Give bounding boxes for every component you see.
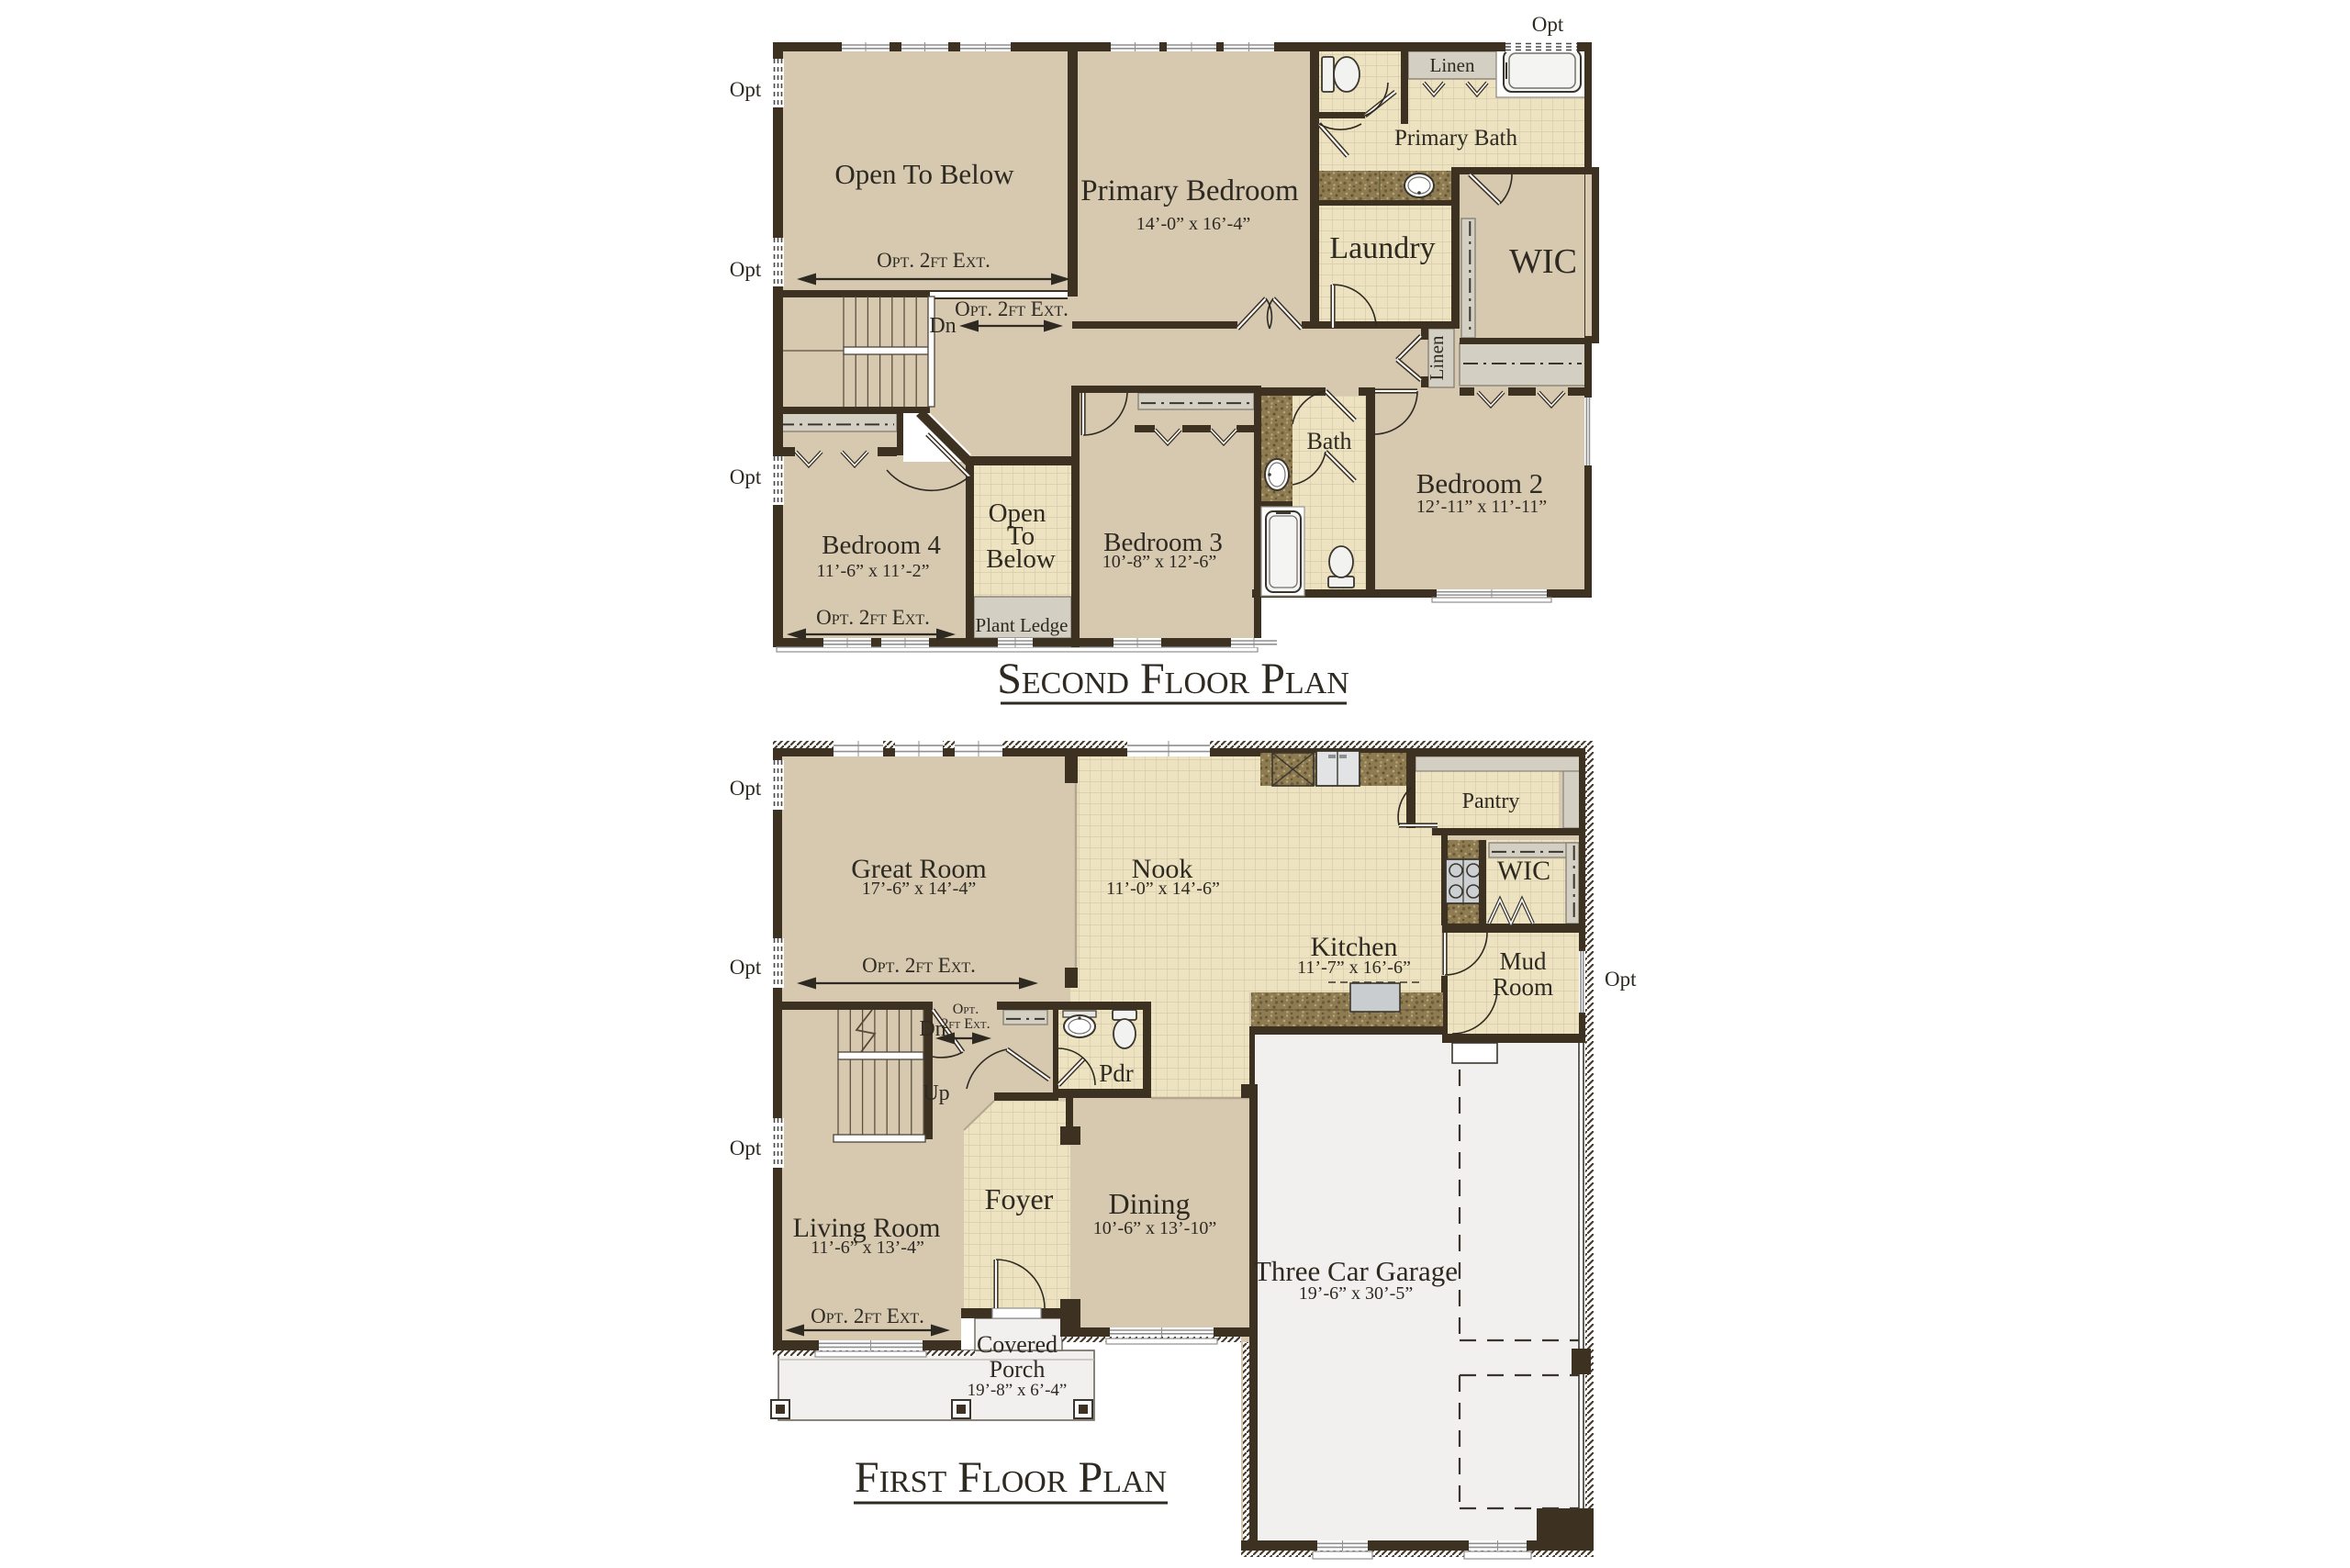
- svg-text:Foyer: Foyer: [985, 1182, 1054, 1215]
- svg-text:Room: Room: [1493, 973, 1553, 1001]
- svg-text:Linen: Linen: [1426, 335, 1448, 380]
- svg-text:Opt. 2ft Ext.: Opt. 2ft Ext.: [811, 1305, 924, 1327]
- svg-text:19’-6” x 30’-5”: 19’-6” x 30’-5”: [1299, 1283, 1413, 1304]
- svg-text:Mud: Mud: [1499, 947, 1547, 975]
- svg-text:11’-6” x 13’-4”: 11’-6” x 13’-4”: [811, 1238, 924, 1258]
- svg-text:Primary Bath: Primary Bath: [1394, 126, 1518, 151]
- svg-text:Primary Bedroom: Primary Bedroom: [1080, 174, 1299, 207]
- svg-text:WIC: WIC: [1509, 242, 1577, 281]
- svg-text:Opt: Opt: [730, 258, 762, 281]
- svg-text:Plant Ledge: Plant Ledge: [976, 614, 1069, 636]
- svg-text:2ft Ext.: 2ft Ext.: [941, 1016, 990, 1032]
- svg-text:Below: Below: [986, 544, 1056, 574]
- svg-text:Second Floor Plan: Second Floor Plan: [997, 655, 1349, 703]
- svg-text:11’-7” x 16’-6”: 11’-7” x 16’-6”: [1297, 958, 1411, 978]
- svg-text:Pantry: Pantry: [1462, 790, 1520, 813]
- svg-text:10’-6” x 13’-10”: 10’-6” x 13’-10”: [1093, 1218, 1216, 1238]
- svg-text:Bedroom 4: Bedroom 4: [822, 531, 941, 560]
- svg-text:11’-0” x 14’-6”: 11’-0” x 14’-6”: [1106, 879, 1220, 899]
- svg-text:10’-8” x 12’-6”: 10’-8” x 12’-6”: [1102, 552, 1216, 572]
- svg-text:Opt. 2ft Ext.: Opt. 2ft Ext.: [816, 606, 930, 629]
- svg-text:WIC: WIC: [1497, 856, 1550, 886]
- svg-text:Porch: Porch: [990, 1356, 1046, 1383]
- svg-text:Open To Below: Open To Below: [834, 158, 1014, 190]
- svg-text:Three Car Garage: Three Car Garage: [1254, 1255, 1458, 1287]
- svg-text:Laundry: Laundry: [1329, 231, 1435, 265]
- svg-text:19’-8” x 6’-4”: 19’-8” x 6’-4”: [968, 1381, 1068, 1400]
- svg-text:First Floor Plan: First Floor Plan: [855, 1453, 1167, 1502]
- svg-text:Opt.: Opt.: [953, 1002, 979, 1017]
- svg-text:11’-6” x 11’-2”: 11’-6” x 11’-2”: [817, 561, 930, 581]
- svg-text:Opt: Opt: [1532, 13, 1564, 36]
- svg-text:Opt: Opt: [730, 1137, 762, 1159]
- svg-text:Opt: Opt: [730, 78, 762, 101]
- svg-text:14’-0” x 16’-4”: 14’-0” x 16’-4”: [1136, 214, 1250, 234]
- svg-text:Linen: Linen: [1430, 54, 1475, 76]
- svg-text:Covered: Covered: [977, 1331, 1057, 1358]
- svg-text:Opt. 2ft Ext.: Opt. 2ft Ext.: [877, 249, 990, 272]
- svg-text:12’-11” x 11’-11”: 12’-11” x 11’-11”: [1416, 497, 1547, 517]
- svg-text:17’-6” x 14’-4”: 17’-6” x 14’-4”: [862, 879, 976, 899]
- svg-text:Opt: Opt: [730, 465, 762, 488]
- svg-text:Pdr: Pdr: [1099, 1059, 1134, 1087]
- svg-text:Opt. 2ft Ext.: Opt. 2ft Ext.: [955, 297, 1069, 320]
- svg-text:Bedroom 2: Bedroom 2: [1416, 467, 1544, 499]
- svg-text:Opt: Opt: [1605, 968, 1637, 991]
- svg-text:Up: Up: [923, 1081, 949, 1105]
- svg-text:Bath: Bath: [1306, 428, 1351, 454]
- svg-text:Dining: Dining: [1109, 1187, 1191, 1220]
- svg-text:Opt: Opt: [730, 777, 762, 800]
- svg-text:Opt: Opt: [730, 956, 762, 979]
- svg-text:Opt. 2ft Ext.: Opt. 2ft Ext.: [862, 954, 976, 977]
- svg-text:Dn: Dn: [929, 314, 956, 338]
